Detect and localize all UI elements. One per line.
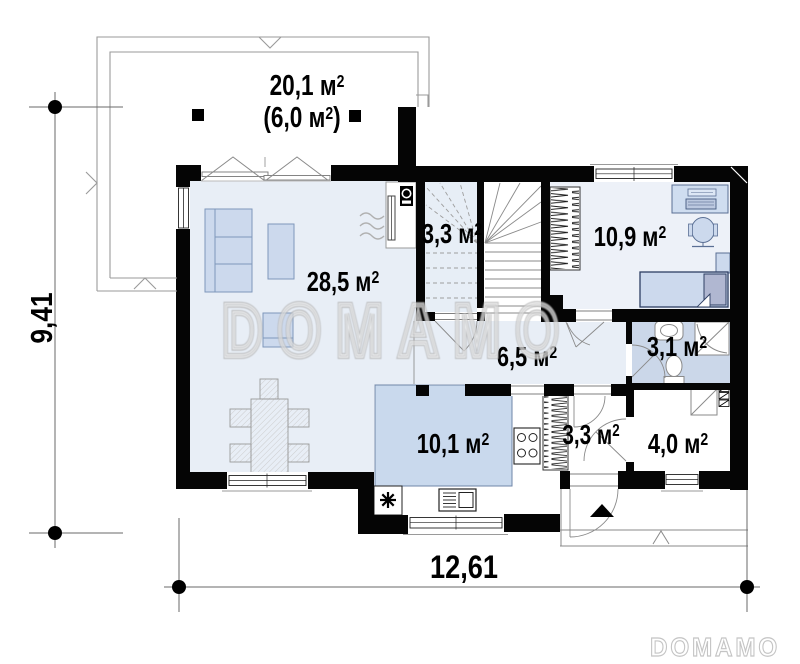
- svg-text:3,3 м2: 3,3 м2: [422, 218, 482, 249]
- svg-text:9,41: 9,41: [25, 292, 59, 343]
- svg-text:4,0 м2: 4,0 м2: [648, 428, 708, 459]
- svg-text:10,9 м2: 10,9 м2: [594, 221, 667, 252]
- svg-text:DOMAMO: DOMAMO: [222, 289, 574, 372]
- svg-text:20,1 м2: 20,1 м2: [270, 68, 345, 101]
- svg-text:12,61: 12,61: [430, 550, 498, 586]
- svg-text:10,1 м2: 10,1 м2: [417, 428, 490, 459]
- svg-text:(6,0 м2): (6,0 м2): [263, 100, 340, 133]
- svg-text:3,3 м2: 3,3 м2: [562, 420, 619, 451]
- svg-text:DOMAMO: DOMAMO: [650, 632, 780, 662]
- svg-text:3,1 м2: 3,1 м2: [647, 331, 707, 362]
